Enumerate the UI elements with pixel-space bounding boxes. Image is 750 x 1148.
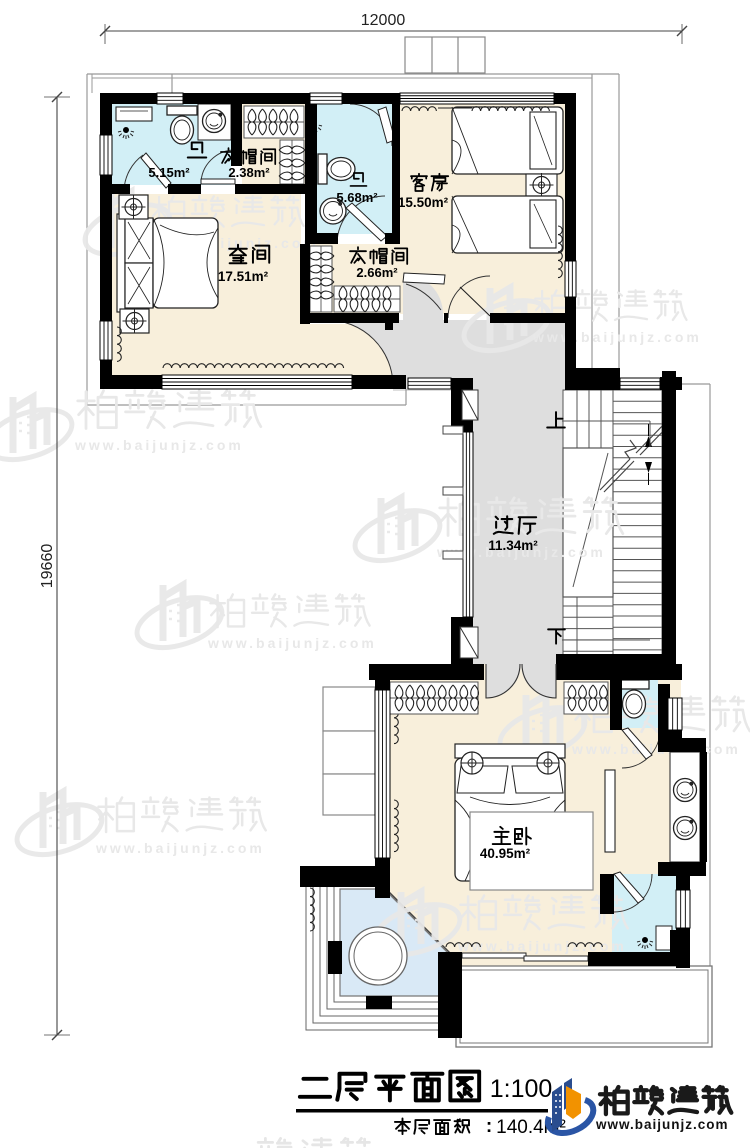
svg-text:15.50m²: 15.50m² [398,195,449,210]
svg-text::: : [486,1116,492,1137]
svg-text:www.baijunjz.com: www.baijunjz.com [457,938,627,954]
svg-text:www.baijunjz.com: www.baijunjz.com [74,437,244,453]
svg-text:17.51m²: 17.51m² [218,269,269,284]
svg-text:2.38m²: 2.38m² [228,165,270,180]
svg-text:5.15m²: 5.15m² [148,165,190,180]
svg-text:1:100: 1:100 [490,1075,553,1103]
svg-text:www.baijunjz.com: www.baijunjz.com [95,840,265,856]
svg-text:5.68m²: 5.68m² [336,190,378,205]
svg-text:www.baijunjz.com: www.baijunjz.com [532,329,702,345]
svg-text:11.34m²: 11.34m² [488,538,538,553]
svg-text:www.baijunjz.com: www.baijunjz.com [207,635,377,651]
svg-text:www.baijunjz.com: www.baijunjz.com [571,741,741,757]
svg-text:12000: 12000 [361,12,406,29]
svg-text:19660: 19660 [39,544,56,589]
svg-text:40.95m²: 40.95m² [480,846,531,861]
svg-text:www.baijunjz.com: www.baijunjz.com [595,1117,729,1132]
svg-text:2.66m²: 2.66m² [356,265,398,280]
